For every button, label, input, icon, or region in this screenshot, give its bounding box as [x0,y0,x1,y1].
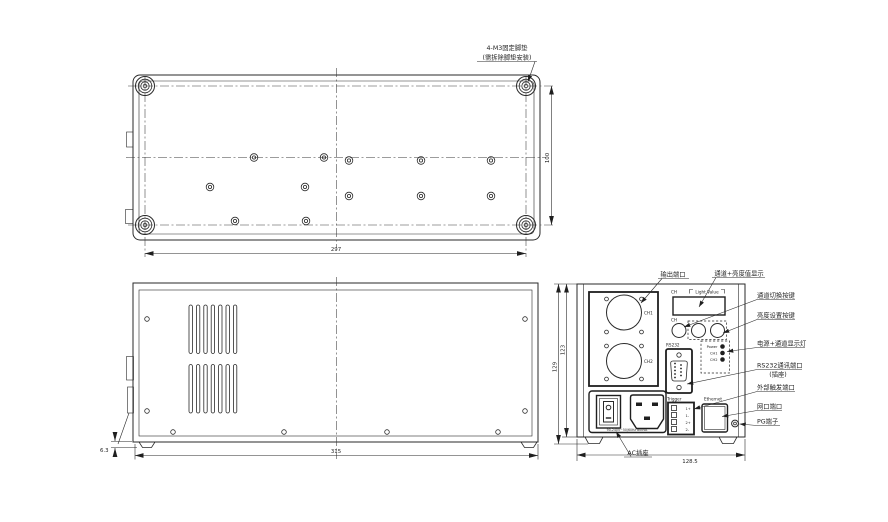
dim-297-label: 297 [331,247,341,253]
display-value-label: Light Value [695,290,719,295]
dim-315-label: 315 [331,449,341,455]
button-ch-label: CH [671,318,677,323]
ac-rating-text: 90-240V~50/60Hz 800VA [607,428,648,432]
svg-text:亮度设置按键: 亮度设置按键 [757,311,795,320]
foot-note-line2: (需拆除脚垫安装) [483,53,532,62]
svg-text:外部触发端口: 外部触发端口 [757,383,795,392]
svg-text:通道+亮度值显示: 通道+亮度值显示 [714,269,763,278]
output-ch1-label: CH1 [644,311,653,316]
trigger-pin-2p: 2+ [686,421,691,425]
drawing-canvas: 297 100 4-M3固定脚垫 (需拆除脚垫安装) [0,0,888,522]
svg-text:网口端口: 网口端口 [757,402,782,411]
dim-6-3-label: 6.3 [100,448,109,454]
background [0,0,888,522]
dim-100-label: 100 [545,152,551,163]
svg-text:RS232通讯端口: RS232通讯端口 [757,361,803,370]
svg-text:通道切换按键: 通道切换按键 [757,291,795,300]
dim-129-label: 129 [553,361,559,372]
dim-128-5-label: 128.5 [682,459,697,465]
dim-123-label: 123 [561,345,567,355]
trigger-pin-1p: 1+ [686,407,691,411]
led-power-label: Power [707,345,718,349]
ch2-led [720,357,725,362]
technical-drawing-page: 297 100 4-M3固定脚垫 (需拆除脚垫安装) [0,0,888,522]
ch1-led [720,351,725,356]
led-ch2-label: CH2 [710,358,718,362]
ethernet-label: Ethernet [704,397,722,402]
trigger-label: Trigger [666,397,682,402]
svg-text:电源+通道显示灯: 电源+通道显示灯 [757,339,807,348]
power-led [720,344,725,349]
output-ch2-label: CH2 [644,359,653,364]
rs232-label: RS232 [666,343,680,348]
foot-note-line1: 4-M3固定脚垫 [487,43,529,52]
svg-text:输出端口: 输出端口 [660,270,685,279]
svg-text:(插座): (插座) [769,370,787,379]
svg-text:PG端子: PG端子 [757,417,778,426]
display-ch-label: CH [671,290,677,295]
led-ch1-label: CH1 [710,352,718,356]
